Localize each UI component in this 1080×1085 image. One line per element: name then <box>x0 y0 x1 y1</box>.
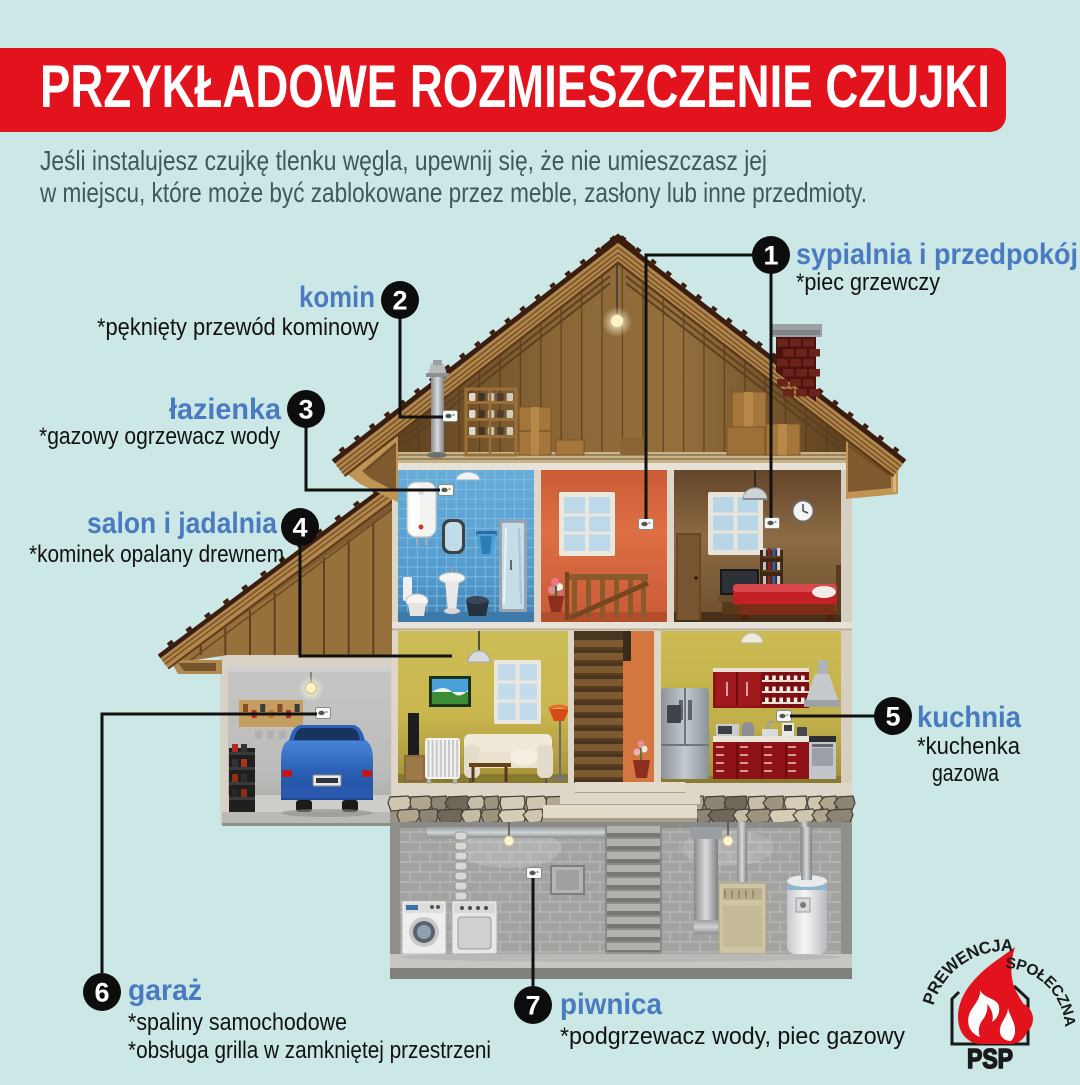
svg-text:kuchnia: kuchnia <box>917 701 1021 734</box>
svg-text:w miejscu, które może być zabl: w miejscu, które może być zablokowane pr… <box>39 177 867 208</box>
svg-text:łazienka: łazienka <box>169 393 281 426</box>
svg-text:*piec grzewczy: *piec grzewczy <box>796 269 940 296</box>
svg-text:*obsługa grilla w zamkniętej p: *obsługa grilla w zamkniętej przestrzeni <box>128 1037 491 1064</box>
svg-text:PSP: PSP <box>967 1043 1013 1074</box>
svg-text:piwnica: piwnica <box>560 988 662 1021</box>
svg-text:1: 1 <box>763 241 778 271</box>
svg-text:garaż: garaż <box>128 974 202 1007</box>
svg-text:4: 4 <box>292 513 307 543</box>
svg-text:5: 5 <box>885 702 900 732</box>
svg-text:*pęknięty przewód kominowy: *pęknięty przewód kominowy <box>97 314 379 341</box>
svg-text:PRZYKŁADOWE ROZMIESZCZENIE CZU: PRZYKŁADOWE ROZMIESZCZENIE CZUJKI <box>40 53 990 120</box>
svg-text:*spaliny samochodowe: *spaliny samochodowe <box>128 1009 347 1036</box>
svg-text:*podgrzewacz wody, piec gazowy: *podgrzewacz wody, piec gazowy <box>560 1023 905 1050</box>
svg-text:*kominek opalany drewnem: *kominek opalany drewnem <box>29 541 284 568</box>
svg-text:7: 7 <box>525 991 540 1021</box>
svg-text:Jeśli instalujesz czujkę tlenk: Jeśli instalujesz czujkę tlenku węgla, u… <box>40 145 767 176</box>
svg-text:salon i jadalnia: salon i jadalnia <box>87 507 277 540</box>
svg-text:sypialnia i przedpokój: sypialnia i przedpokój <box>796 238 1078 271</box>
svg-text:*gazowy ogrzewacz wody: *gazowy ogrzewacz wody <box>39 423 280 450</box>
svg-text:2: 2 <box>392 286 407 316</box>
svg-text:6: 6 <box>94 978 109 1008</box>
svg-text:komin: komin <box>299 281 375 314</box>
svg-text:gazowa: gazowa <box>932 760 1000 787</box>
svg-text:3: 3 <box>298 395 313 425</box>
svg-text:*kuchenka: *kuchenka <box>917 733 1021 760</box>
